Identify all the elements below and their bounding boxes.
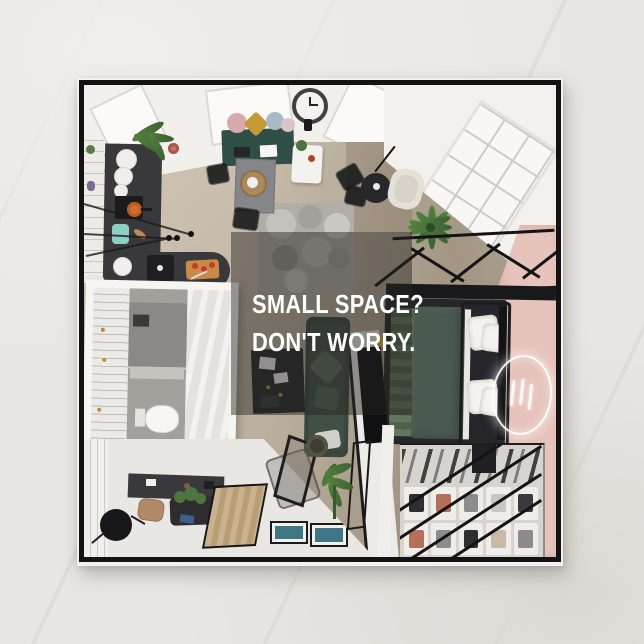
railing-strut: [522, 239, 556, 280]
toilet-tank: [135, 408, 145, 426]
headline-text: SMALL SPACE? DON'T WORRY.: [252, 285, 424, 361]
pendant-bulb: [188, 231, 194, 237]
pendant-bulb: [174, 235, 180, 241]
frosted-glass-panel: [184, 290, 230, 457]
shower-fixture: [133, 314, 149, 326]
headline-line1: SMALL SPACE?: [252, 285, 424, 323]
hanging-clothes: [402, 449, 540, 483]
left-wall: [84, 139, 104, 283]
armchair-cushion: [392, 173, 420, 205]
toilet: [145, 405, 180, 434]
black-chair: [100, 509, 132, 541]
wire-chair: [233, 207, 260, 230]
card-black-frame: SMALL SPACE? DON'T WORRY.: [79, 80, 561, 562]
tomato: [209, 262, 215, 268]
pendant-bulb: [166, 235, 172, 241]
brass-fixture: [102, 358, 106, 362]
tile-wall: [90, 288, 129, 455]
small-plant: [86, 145, 95, 154]
vanity-counter: [130, 366, 184, 379]
white-cushion: [281, 118, 295, 132]
pendant-lamp: [304, 119, 312, 131]
pink-bowl: [168, 143, 179, 154]
brass-fixture: [97, 408, 101, 412]
wire-chair: [207, 163, 230, 184]
shelf-plant: [296, 140, 307, 151]
tomato: [192, 263, 198, 269]
neon-glyphs: [519, 379, 525, 405]
floor-art-frame: [310, 523, 348, 547]
runner-rug: [202, 483, 268, 549]
shelf-item: [146, 479, 156, 486]
square-card: SMALL SPACE? DON'T WORRY.: [77, 78, 563, 566]
closet-cell: [514, 523, 538, 556]
apartment-top-view-photo: SMALL SPACE? DON'T WORRY.: [84, 85, 556, 557]
orange-pan: [127, 202, 142, 217]
floor-art-frame: [270, 521, 308, 544]
coffee-cup: [373, 183, 380, 190]
wooden-stool: [137, 497, 166, 522]
red-cup: [308, 155, 315, 162]
brass-fixture: [101, 328, 105, 332]
shelf-item: [204, 481, 214, 489]
neon-glyphs: [510, 380, 516, 406]
bench-tray: [234, 147, 250, 157]
neon-glyphs: [527, 384, 533, 410]
marble-background: SMALL SPACE? DON'T WORRY.: [0, 0, 644, 644]
wall-shelf-table: [291, 144, 323, 184]
pan-handle: [141, 208, 152, 211]
wardrobe-closet: [400, 443, 545, 557]
headline-line2: DON'T WORRY.: [252, 323, 424, 361]
table-plant: [195, 493, 206, 504]
small-vase: [87, 181, 95, 191]
tray-plate: [247, 177, 258, 188]
shower-area: [128, 302, 187, 369]
bathroom: [84, 279, 239, 464]
kettle: [113, 257, 132, 276]
woven-pouf: [306, 435, 328, 457]
plate: [114, 167, 133, 186]
bathroom-interior: [90, 288, 230, 457]
rug-pebble: [298, 205, 322, 229]
railing-strut: [486, 243, 540, 278]
faucet: [157, 265, 163, 271]
laptop: [260, 145, 278, 158]
